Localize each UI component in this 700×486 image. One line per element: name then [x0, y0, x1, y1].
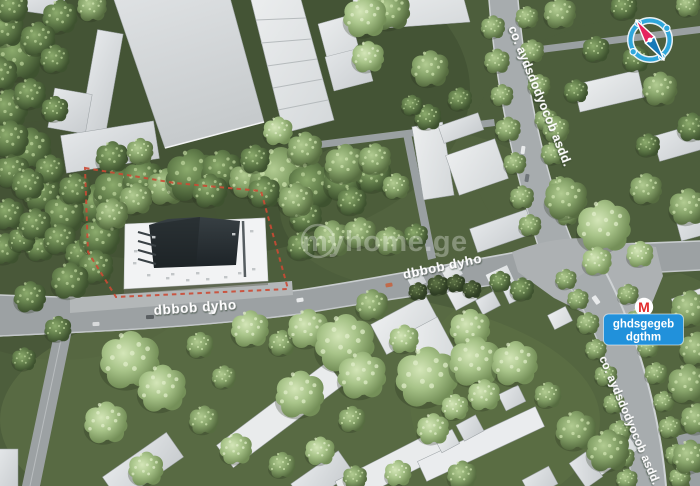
- svg-text:M: M: [638, 299, 650, 315]
- svg-text:ghdsgegeb: ghdsgegeb: [613, 319, 674, 331]
- svg-text:dgthm: dgthm: [626, 332, 661, 344]
- svg-text:myhome.ge: myhome.ge: [302, 226, 468, 258]
